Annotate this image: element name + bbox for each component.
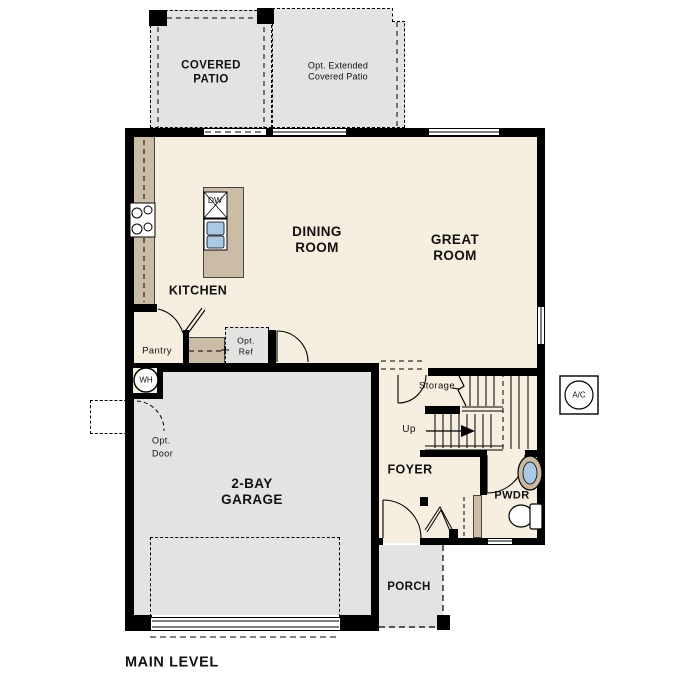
island-sink	[204, 219, 227, 250]
kitchen-label: KITCHEN	[169, 284, 227, 299]
great-line2: ROOM	[433, 248, 477, 263]
plan-title: MAIN LEVEL	[125, 654, 219, 671]
water-heater-label: WH	[139, 375, 152, 384]
great-line1: GREAT	[431, 232, 479, 247]
opt-ref-line2: Ref	[239, 346, 253, 356]
floor-plan: COVERED PATIO Opt. Extended Covered Pati…	[0, 0, 687, 687]
porch-label: PORCH	[387, 581, 431, 595]
dining-line1: DINING	[292, 224, 342, 239]
garage-line1: 2-BAY	[231, 476, 272, 491]
linework-layer	[0, 0, 687, 687]
ac-label: A/C	[572, 390, 585, 399]
garage-label: 2-BAY GARAGE	[221, 476, 283, 508]
covered-patio-label: COVERED PATIO	[181, 59, 241, 86]
foyer-label: FOYER	[387, 463, 432, 478]
opt-door-arc	[137, 401, 164, 431]
up-label: Up	[402, 424, 416, 436]
dining-line2: ROOM	[295, 240, 339, 255]
dishwasher-label: DW	[208, 195, 222, 205]
hall-opening-dashes	[381, 361, 426, 369]
storage-label: Storage	[419, 380, 455, 391]
opt-ref-label: Opt. Ref	[237, 335, 255, 356]
opt-door-line1: Opt.	[152, 435, 171, 445]
covered-patio-line1: COVERED	[181, 59, 241, 71]
opt-door-line2: Door	[152, 448, 173, 458]
cooktop	[130, 203, 155, 237]
pantry-label: Pantry	[142, 345, 172, 356]
toilet	[509, 504, 542, 529]
covered-patio-line2: PATIO	[193, 73, 228, 85]
door-arcs	[158, 308, 525, 538]
dining-room-label: DINING ROOM	[292, 224, 342, 256]
great-room-label: GREAT ROOM	[431, 232, 479, 264]
opt-ref-tick	[221, 346, 229, 354]
powder-label: PWDR	[494, 490, 529, 503]
opt-ref-line1: Opt.	[237, 335, 255, 345]
ext-patio-line1: Opt. Extended	[308, 60, 368, 70]
opt-door-label: Opt. Door	[152, 434, 173, 459]
ext-patio-label: Opt. Extended Covered Patio	[308, 60, 368, 81]
powder-sink	[518, 456, 542, 490]
ext-patio-line2: Covered Patio	[308, 71, 368, 81]
garage-line2: GARAGE	[221, 492, 283, 507]
closet-bifold	[425, 507, 452, 532]
